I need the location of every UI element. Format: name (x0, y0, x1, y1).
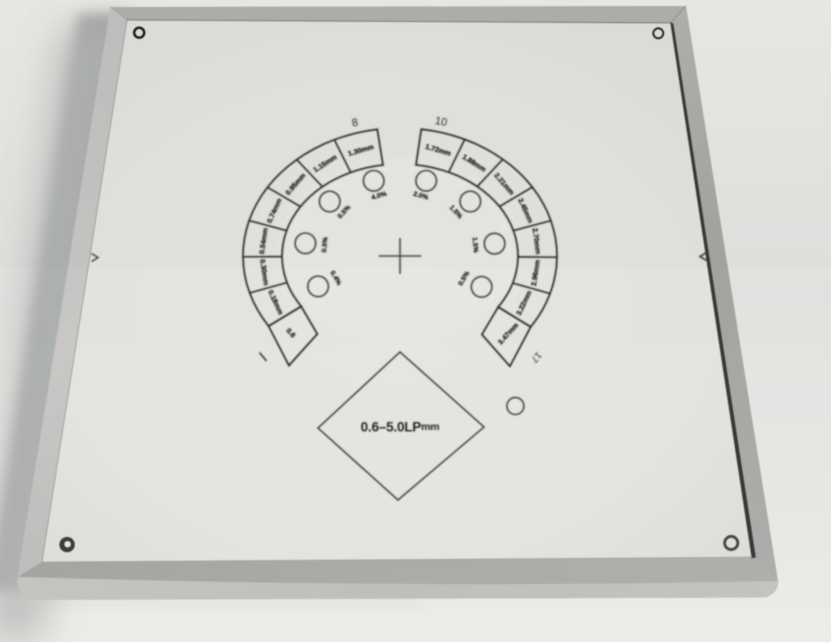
svg-text:0.6–5.0LPmm: 0.6–5.0LPmm (361, 420, 440, 435)
svg-text:1.5%: 1.5% (471, 237, 479, 253)
svg-text:10: 10 (434, 115, 448, 129)
svg-text:0.5%: 0.5% (321, 237, 329, 253)
